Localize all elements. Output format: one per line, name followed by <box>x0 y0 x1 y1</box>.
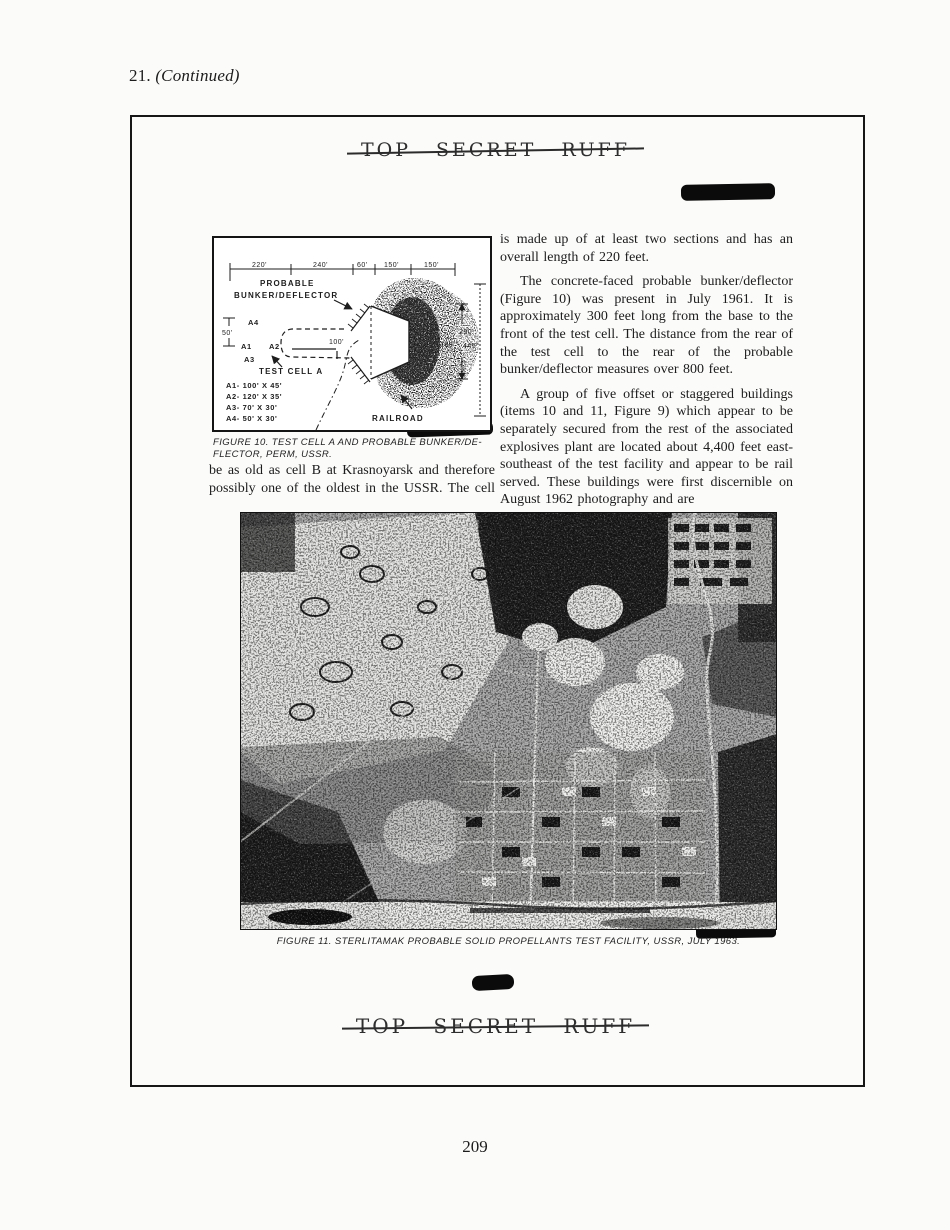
paragraph-sections: is made up of at least two sections and … <box>500 231 793 266</box>
label-test-cell-a: TEST CELL A <box>259 367 323 376</box>
figure10-caption-line2: FLECTOR, PERM, USSR. <box>213 449 505 461</box>
dim-445-label: 445' <box>463 343 478 350</box>
redaction-bar-footer <box>472 974 515 991</box>
label-a4: A4 <box>248 318 259 327</box>
figure10-caption-line1: FIGURE 10. TEST CELL A AND PROBABLE BUNK… <box>213 437 505 449</box>
dim-240: 240' <box>313 262 328 269</box>
probable-label-line1: PROBABLE <box>260 279 315 288</box>
dim-220: 220' <box>252 262 267 269</box>
dim-290-label: 290' <box>459 329 474 336</box>
figure10-diagram: 220' 240' 60' 150' 150' PROBABLE BUNKER/… <box>212 236 492 432</box>
dim-150b: 150' <box>424 262 439 269</box>
header-number: 21. <box>129 66 151 85</box>
classification-footer: TOP SECRET RUFF <box>130 1014 861 1038</box>
page-number: 209 <box>0 1137 950 1157</box>
label-100ft: 100' <box>329 339 344 346</box>
legend-a4: A4- 50' X 30' <box>226 414 277 423</box>
dim-150a: 150' <box>384 262 399 269</box>
left-column-line1: be as old as cell B at Krasnoyarsk and t… <box>209 462 495 480</box>
redaction-bar-top <box>681 183 775 201</box>
aerial-photo <box>240 512 777 930</box>
paragraph-bunker: The concrete-faced probable bunker/defle… <box>500 273 793 379</box>
legend-a2: A2- 120' X 35' <box>226 392 282 401</box>
page-header: 21. (Continued) <box>129 66 240 86</box>
dim-60: 60' <box>357 262 368 269</box>
label-a1: A1 <box>241 342 252 351</box>
figure11-caption: FIGURE 11. STERLITAMAK PROBABLE SOLID PR… <box>240 936 777 947</box>
legend-a3: A3- 70' X 30' <box>226 403 277 412</box>
left-column-text: be as old as cell B at Krasnoyarsk and t… <box>209 462 495 497</box>
label-a3: A3 <box>244 355 255 364</box>
header-continued-label: (Continued) <box>155 66 239 85</box>
figure10-caption: FIGURE 10. TEST CELL A AND PROBABLE BUNK… <box>213 437 505 460</box>
legend-a1: A1- 100' X 45' <box>226 381 282 390</box>
probable-label-line2: BUNKER/DEFLECTOR <box>234 291 338 300</box>
classification-header-top: TOP SECRET RUFF <box>130 139 861 161</box>
paragraph-buildings: A group of five offset or staggered buil… <box>500 386 793 509</box>
dim-50-label: 50' <box>222 330 233 337</box>
left-column-line2: possibly one of the oldest in the USSR. … <box>209 480 495 498</box>
right-column-text: is made up of at least two sections and … <box>500 231 793 516</box>
label-a2: A2 <box>269 342 280 351</box>
dim-160-label: 160' <box>440 342 455 349</box>
label-railroad: RAILROAD <box>372 414 424 423</box>
